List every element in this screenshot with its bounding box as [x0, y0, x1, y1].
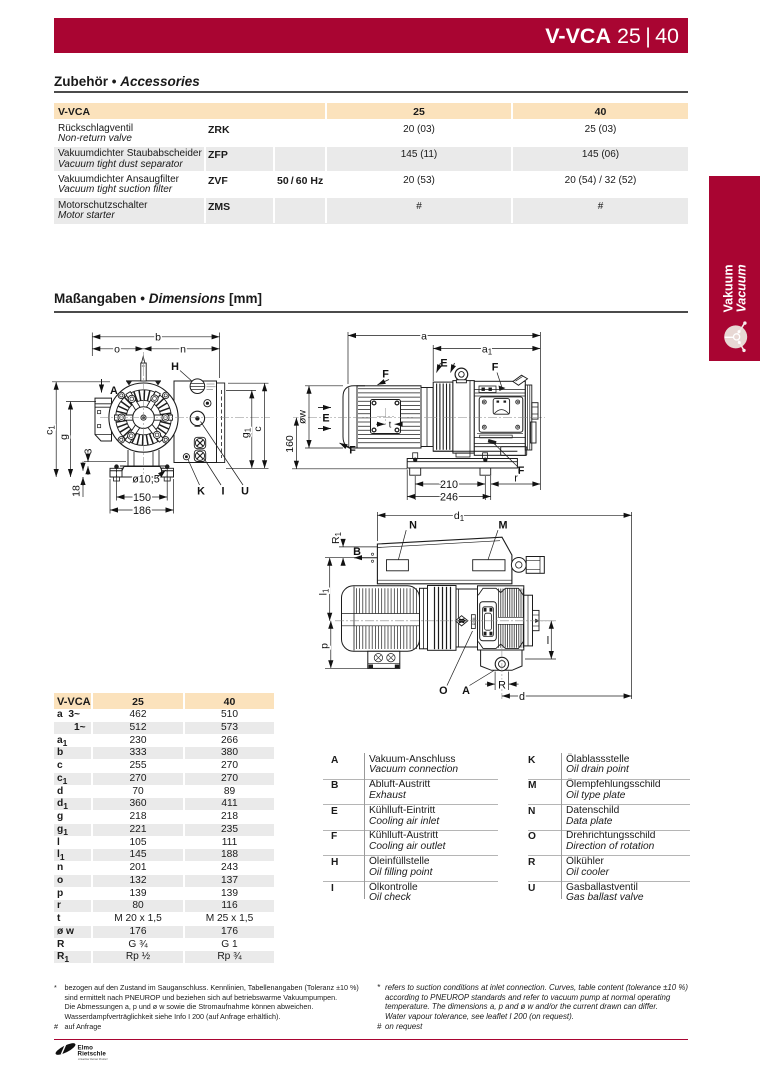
svg-text:a: a — [421, 330, 427, 342]
svg-text:b: b — [155, 332, 161, 344]
svg-text:F: F — [382, 369, 389, 381]
svg-text:150: 150 — [133, 492, 151, 504]
svg-text:p: p — [319, 643, 331, 649]
svg-text:3: 3 — [83, 448, 95, 454]
svg-text:l: l — [547, 635, 549, 647]
svg-text:d: d — [519, 691, 525, 703]
svg-text:B: B — [353, 546, 361, 558]
svg-text:c: c — [252, 426, 264, 431]
svg-text:210: 210 — [440, 479, 458, 491]
svg-text:M: M — [499, 520, 508, 532]
svg-text:o: o — [114, 344, 120, 356]
svg-text:A: A — [110, 385, 118, 397]
svg-text:K: K — [197, 486, 205, 498]
svg-text:DSM: DSM — [472, 617, 476, 625]
svg-text:A: A — [462, 685, 470, 697]
svg-text:O: O — [439, 685, 447, 697]
svg-text:F: F — [518, 465, 525, 477]
svg-text:N: N — [409, 520, 417, 532]
svg-text:g1: g1 — [240, 428, 253, 438]
svg-text:E: E — [440, 358, 447, 370]
svg-text:l1: l1 — [318, 589, 331, 596]
svg-text:I: I — [222, 486, 225, 498]
svg-text:186: 186 — [133, 505, 151, 517]
svg-text:E: E — [322, 413, 329, 425]
svg-text:a1: a1 — [482, 343, 492, 356]
svg-text:F: F — [349, 445, 356, 457]
svg-text:R1: R1 — [330, 532, 343, 544]
svg-text:160: 160 — [284, 435, 296, 453]
svg-text:R: R — [498, 679, 506, 691]
svg-text:F: F — [492, 362, 499, 374]
svg-text:d1: d1 — [454, 510, 464, 523]
svg-text:H: H — [171, 361, 179, 373]
svg-text:r: r — [514, 473, 518, 485]
svg-text:c1: c1 — [44, 425, 57, 435]
svg-text:Rietschle: Rietschle — [78, 1051, 107, 1058]
svg-text:A Gardner Denver Product: A Gardner Denver Product — [77, 1058, 108, 1061]
svg-text:ø10,5: ø10,5 — [132, 474, 160, 486]
svg-text:g: g — [58, 434, 70, 440]
svg-text:U: U — [241, 486, 249, 498]
svg-text:øw: øw — [297, 410, 309, 424]
svg-text:n: n — [180, 344, 186, 356]
svg-text:246: 246 — [440, 491, 458, 503]
svg-text:18: 18 — [71, 485, 83, 497]
